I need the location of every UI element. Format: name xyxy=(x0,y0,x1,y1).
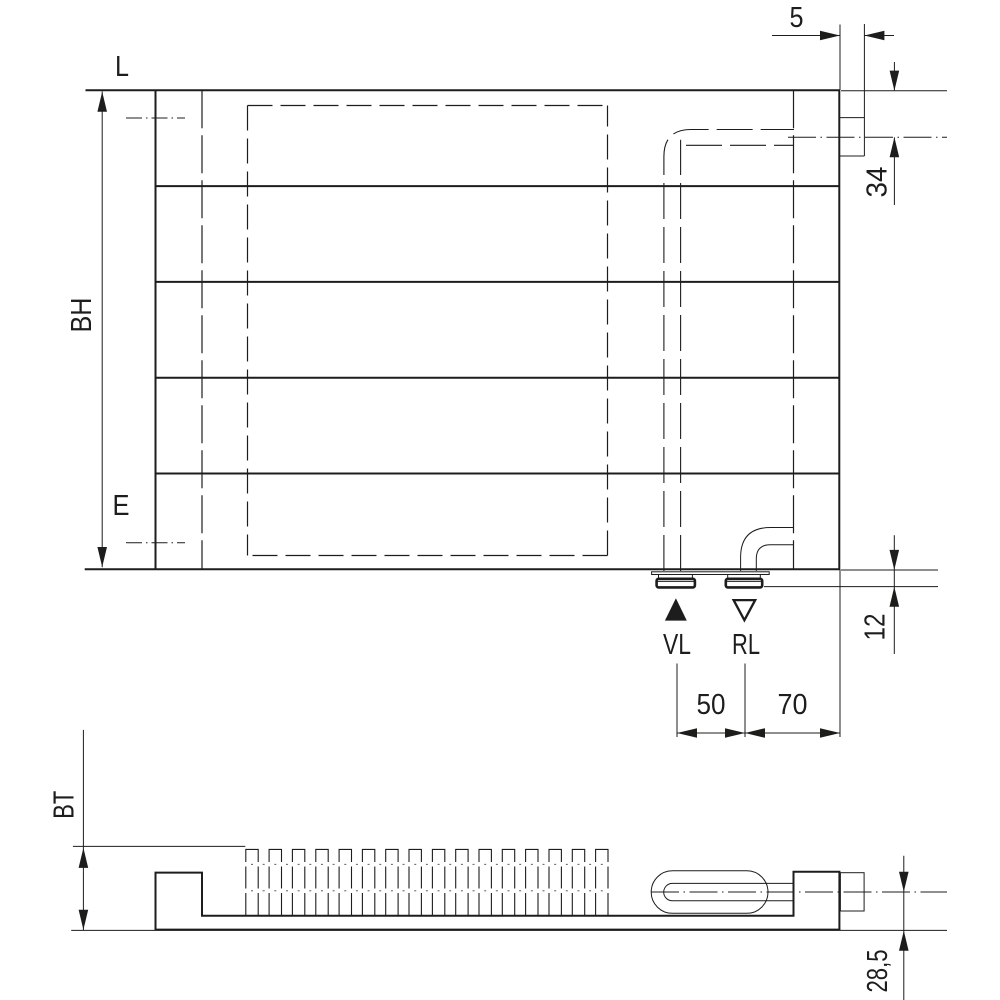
svg-text:12: 12 xyxy=(860,614,892,641)
svg-text:5: 5 xyxy=(790,2,804,34)
svg-text:70: 70 xyxy=(778,689,808,721)
svg-text:BH: BH xyxy=(66,298,98,333)
svg-text:E: E xyxy=(113,490,130,522)
svg-text:50: 50 xyxy=(697,689,726,721)
svg-text:34: 34 xyxy=(862,167,894,198)
svg-text:VL: VL xyxy=(663,629,691,661)
svg-text:BT: BT xyxy=(49,790,81,818)
svg-text:L: L xyxy=(115,51,129,83)
svg-text:RL: RL xyxy=(732,629,760,661)
svg-text:28,5: 28,5 xyxy=(862,950,894,993)
